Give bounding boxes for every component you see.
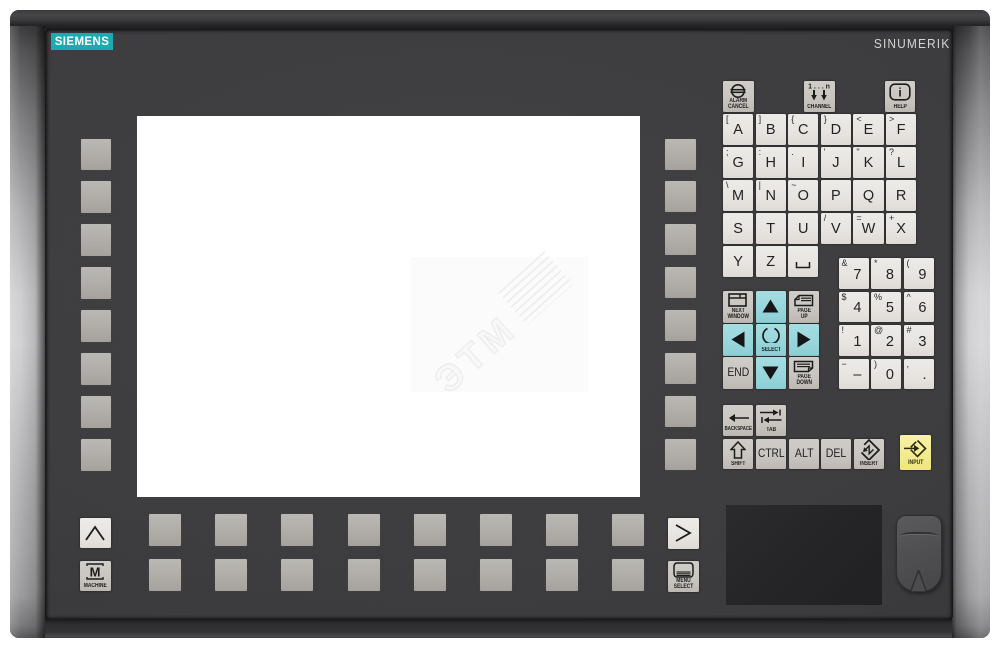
svg-text:M: M <box>90 565 101 580</box>
svg-text:1 . . . n: 1 . . . n <box>808 84 830 91</box>
svg-text:i: i <box>898 86 901 100</box>
